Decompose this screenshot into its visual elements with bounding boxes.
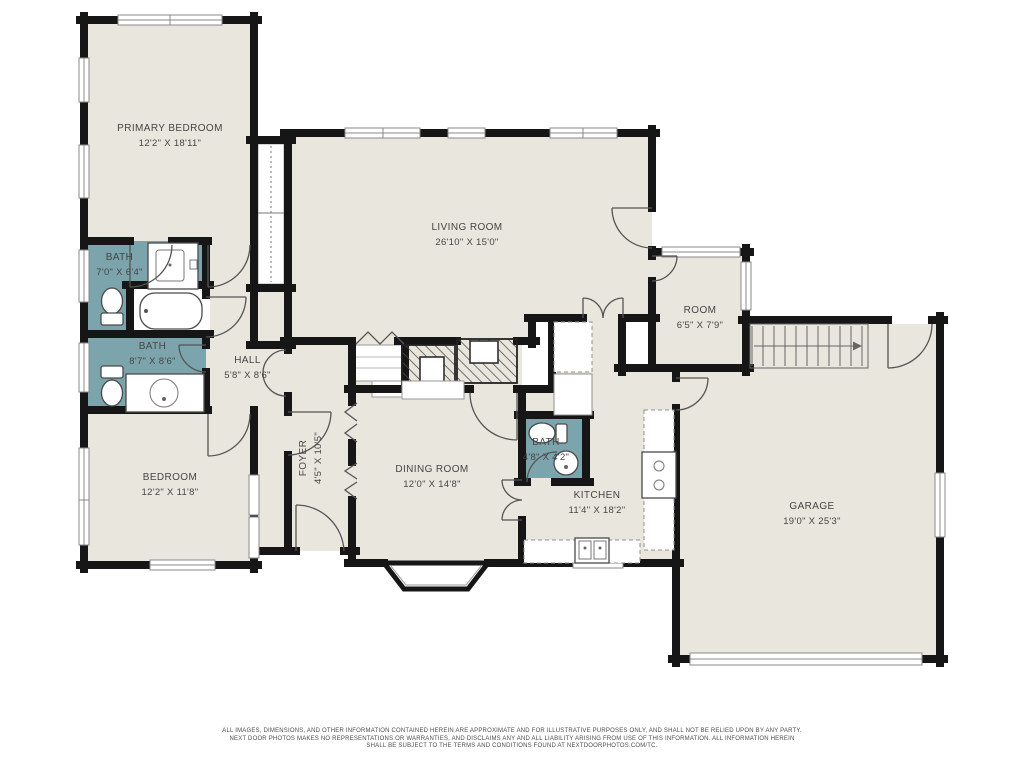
room-dims: 4'8" X 4'2" — [508, 452, 584, 463]
room-dims: 7'0" X 6'4" — [72, 267, 167, 278]
room-name: BATH — [72, 252, 167, 264]
room-name: FOYER — [298, 398, 310, 518]
label-bath-hall: BATH 8'7" X 8'6" — [105, 341, 200, 367]
label-foyer: FOYER 4'5" X 10'5" — [298, 398, 326, 518]
floor-plan-canvas — [0, 0, 1024, 768]
room-name: BATH — [508, 437, 584, 449]
room-dims: 6'5" X 7'9" — [655, 320, 745, 331]
toilet — [102, 380, 123, 406]
label-bath-primary: BATH 7'0" X 6'4" — [72, 252, 167, 278]
room-dims: 12'0" X 14'8" — [342, 479, 522, 490]
room-dims: 19'0" X 25'3" — [722, 516, 902, 527]
room-dims: 8'7" X 8'6" — [105, 356, 200, 367]
bathtub — [140, 293, 202, 329]
room-dims: 5'8" X 8'6" — [200, 370, 295, 381]
label-room: ROOM 6'5" X 7'9" — [655, 305, 745, 331]
disclaimer-line: NEXT DOOR PHOTOS MAKES NO REPRESENTATION… — [0, 736, 1024, 744]
room-name: BATH — [105, 341, 200, 353]
toilet — [102, 288, 123, 314]
disclaimer: ALL IMAGES, DIMENSIONS, AND OTHER INFORM… — [0, 728, 1024, 751]
room-dims: 12'2" X 18'11" — [85, 138, 255, 149]
room-name: HALL — [200, 355, 295, 367]
room-name: PRIMARY BEDROOM — [85, 123, 255, 135]
room-name: GARAGE — [722, 501, 902, 513]
vanity-sink — [126, 374, 204, 412]
room-dims: 11'4" X 18'2" — [512, 505, 682, 516]
label-primary-bedroom: PRIMARY BEDROOM 12'2" X 18'11" — [85, 123, 255, 149]
label-kitchen: KITCHEN 11'4" X 18'2" — [512, 490, 682, 516]
room-dims: 26'10" X 15'0" — [367, 237, 567, 248]
label-living-room: LIVING ROOM 26'10" X 15'0" — [367, 222, 567, 248]
label-bath-small: BATH 4'8" X 4'2" — [508, 437, 584, 463]
label-garage: GARAGE 19'0" X 25'3" — [722, 501, 902, 527]
room-dims: 4'5" X 10'5" — [313, 398, 324, 518]
room-name: BEDROOM — [85, 472, 255, 484]
label-hall: HALL 5'8" X 8'6" — [200, 355, 295, 381]
room-name: ROOM — [655, 305, 745, 317]
room-name: KITCHEN — [512, 490, 682, 502]
disclaimer-line: ALL IMAGES, DIMENSIONS, AND OTHER INFORM… — [0, 728, 1024, 736]
label-dining-room: DINING ROOM 12'0" X 14'8" — [342, 464, 522, 490]
room-name: DINING ROOM — [342, 464, 522, 476]
room-name: LIVING ROOM — [367, 222, 567, 234]
disclaimer-line: SHALL BE SUBJECT TO THE TERMS AND CONDIT… — [0, 743, 1024, 751]
floor-plan-page: PRIMARY BEDROOM 12'2" X 18'11" LIVING RO… — [0, 0, 1024, 768]
room-dims: 12'2" X 11'8" — [85, 487, 255, 498]
label-bedroom: BEDROOM 12'2" X 11'8" — [85, 472, 255, 498]
